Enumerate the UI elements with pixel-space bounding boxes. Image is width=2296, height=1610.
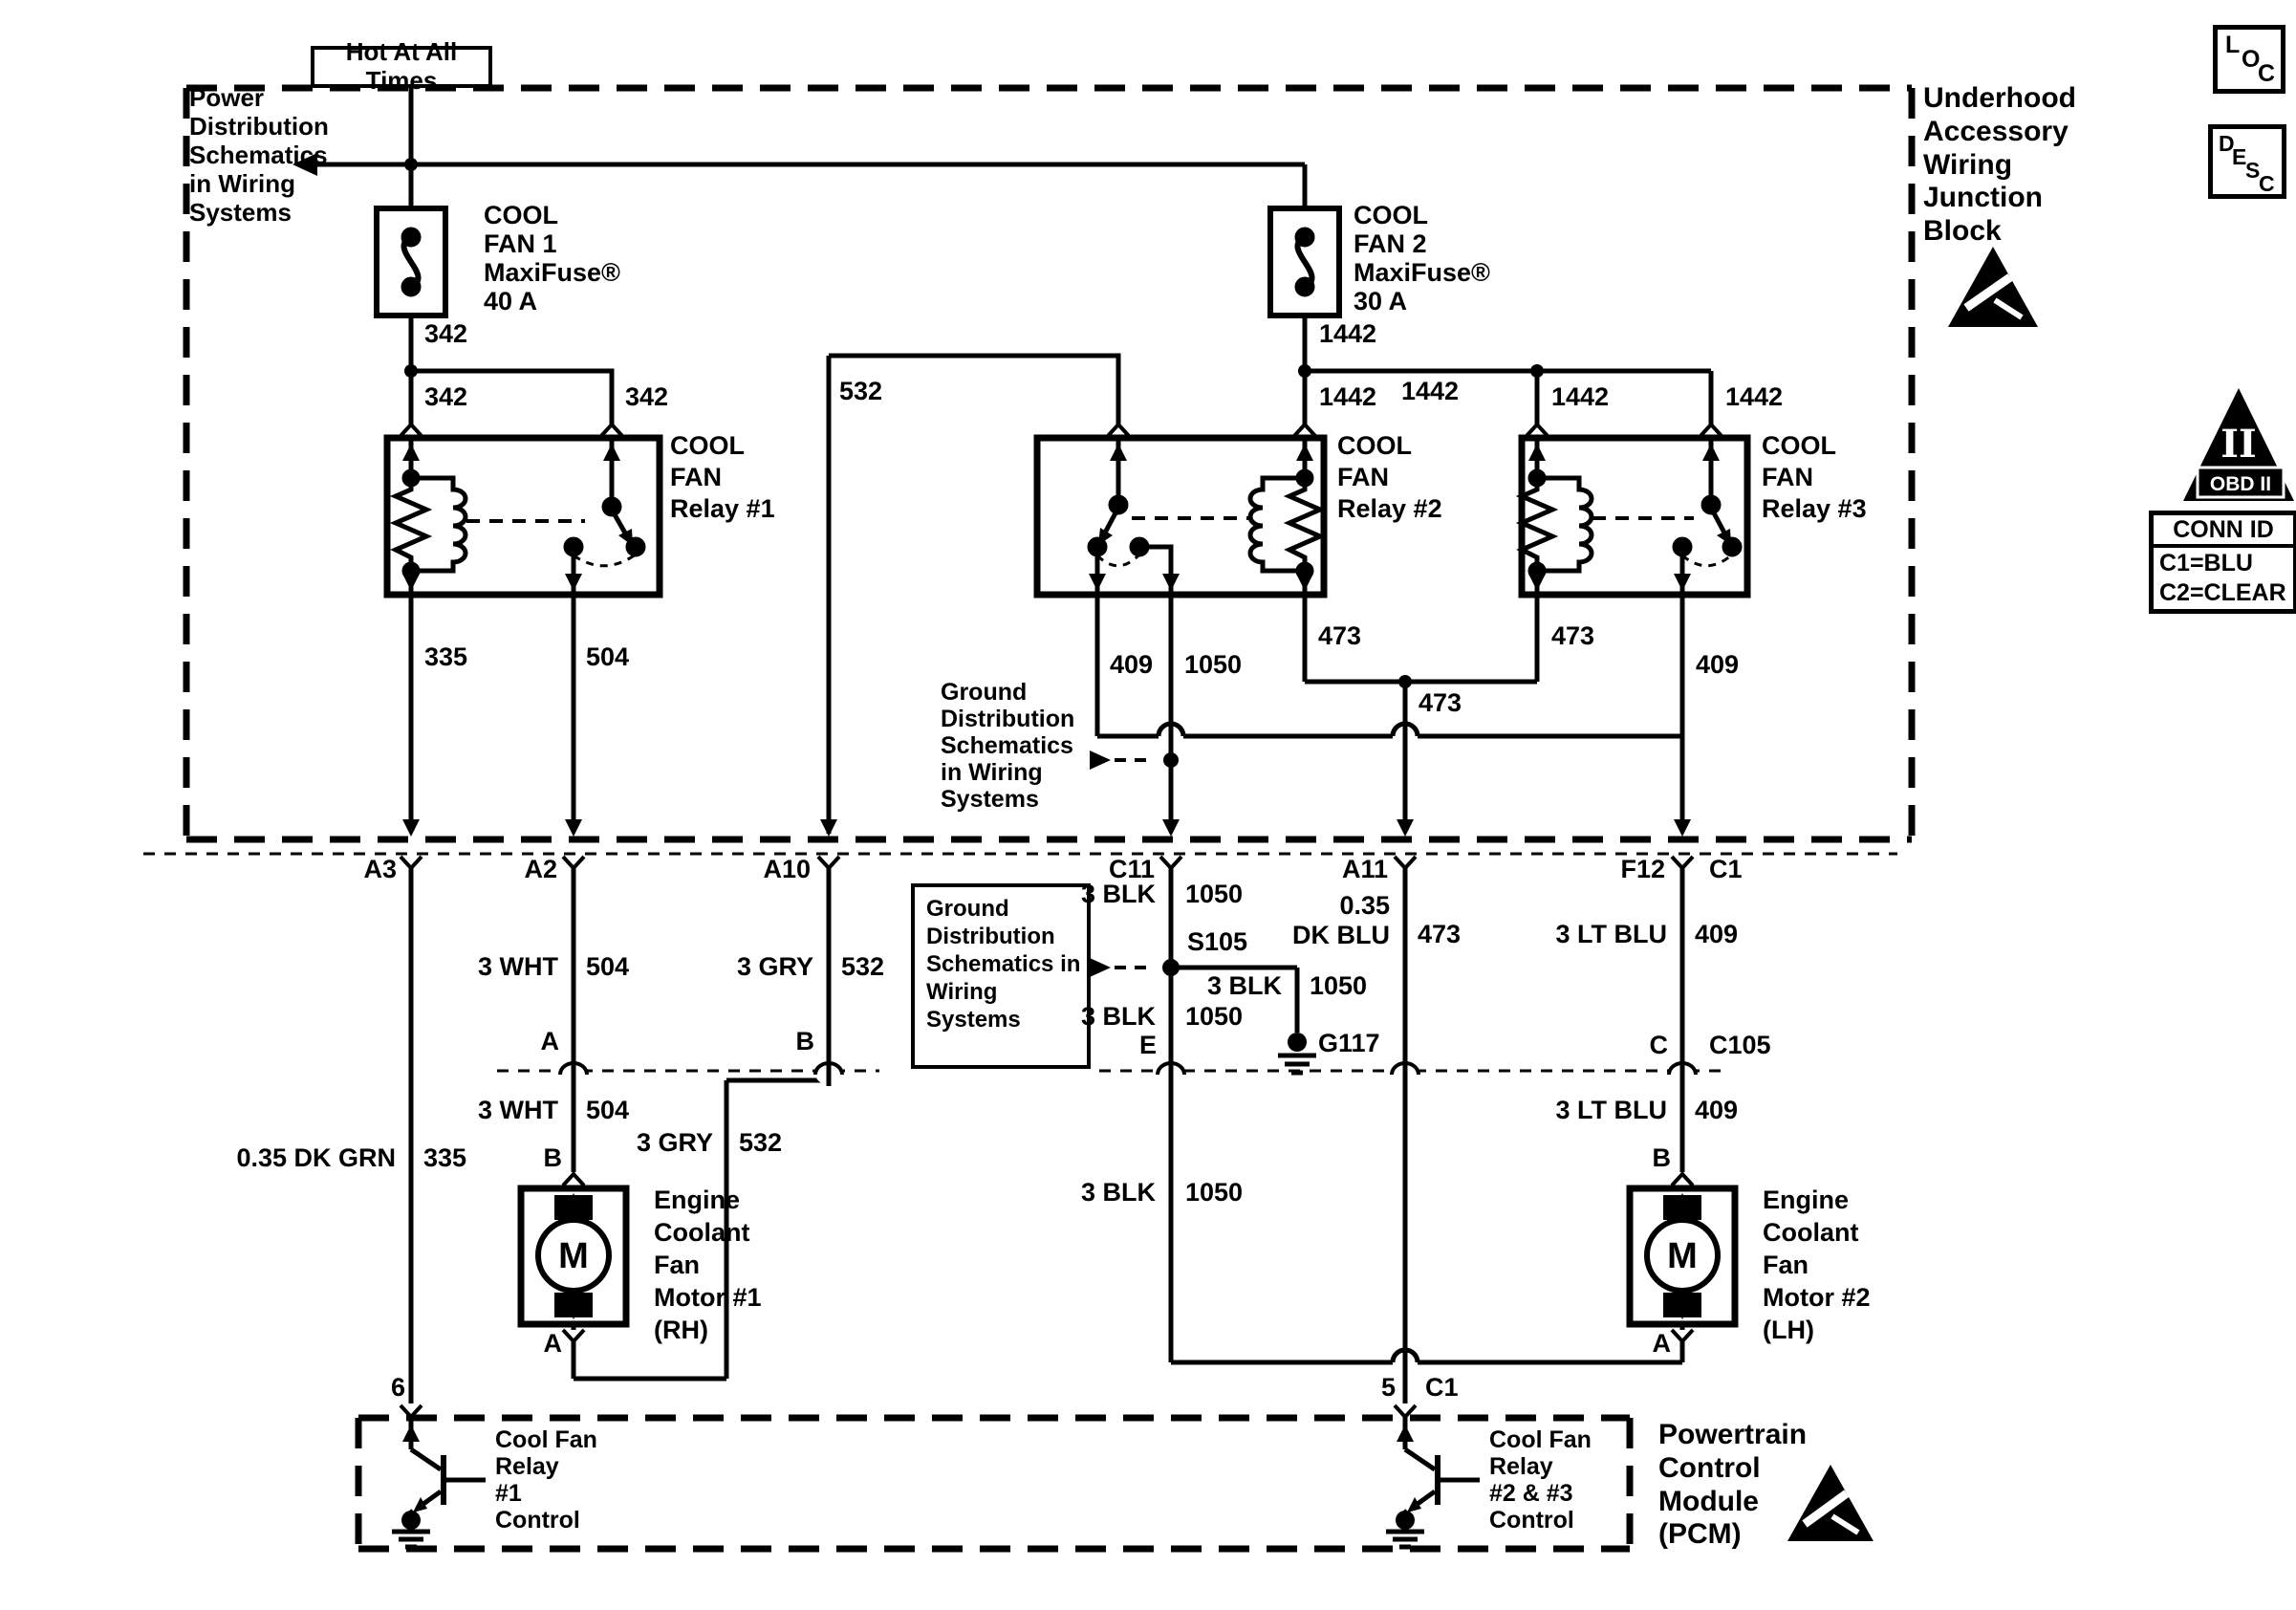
- label-gry-l: 3 GRY: [579, 1128, 713, 1158]
- relay1-symbol: [387, 438, 660, 595]
- desc-letter-c: C: [2259, 171, 2275, 197]
- wire-335: 335: [424, 642, 467, 672]
- num-532-u: 532: [841, 952, 884, 982]
- label-dkgrn: 0.35 DK GRN: [164, 1143, 396, 1173]
- motor1-label: Engine Coolant Fan Motor #1 (RH): [654, 1184, 762, 1346]
- conn-id-row2: C2=CLEAR: [2154, 579, 2293, 607]
- c105-pin-c: C: [1611, 1031, 1668, 1060]
- desc-badge: D E S C: [2208, 124, 2286, 199]
- num-532-l: 532: [739, 1128, 782, 1158]
- num-504-l: 504: [586, 1096, 629, 1125]
- conn-id-table: CONN ID C1=BLU C2=CLEAR: [2149, 511, 2296, 614]
- conn-id-row1: C1=BLU: [2154, 548, 2293, 579]
- num-409-l: 409: [1695, 1096, 1738, 1125]
- fuse-fan1-label: COOL FAN 1 MaxiFuse® 40 A: [484, 201, 620, 315]
- wire-504: 504: [586, 642, 629, 672]
- num-504-u: 504: [586, 952, 629, 982]
- motor1-m-symbol: M: [545, 1235, 602, 1277]
- wire-1442-fuse: 1442: [1319, 319, 1376, 349]
- wire-1442-mid: 1442: [1401, 377, 1459, 406]
- num-1050-l: 1050: [1185, 1178, 1243, 1207]
- pcm-driver1-label: Cool Fan Relay #1 Control: [495, 1426, 597, 1534]
- num-1050-m: 1050: [1185, 1002, 1243, 1032]
- wire-1442-r3coil: 1442: [1551, 382, 1609, 412]
- c105-pin-a: A: [502, 1027, 559, 1056]
- fuse-fan2-label: COOL FAN 2 MaxiFuse® 30 A: [1354, 201, 1490, 315]
- wire-473-mid: 473: [1419, 688, 1462, 718]
- pcm-title: Powertrain Control Module (PCM): [1658, 1419, 1807, 1552]
- conn-c105: C105: [1709, 1031, 1771, 1060]
- label-wht-l: 3 WHT: [424, 1096, 558, 1125]
- wire-473-right: 473: [1551, 621, 1594, 651]
- c105-pin-b: B: [757, 1027, 814, 1056]
- fuse-fan2-symbol: [1270, 208, 1339, 315]
- relay3-symbol: [1522, 438, 1747, 595]
- conn-id-title: CONN ID: [2154, 515, 2293, 548]
- label-gry-u: 3 GRY: [680, 952, 813, 982]
- ground-dist-arrow-1: [1090, 751, 1179, 770]
- ground-dist-note-2-box: Ground Distribution Schematics in Wiring…: [911, 883, 1091, 1069]
- pcm-pin6: 6: [367, 1373, 405, 1403]
- motor1-pin-a: A: [505, 1329, 562, 1359]
- ground-dist-arrow-2: [1090, 958, 1152, 977]
- splice-s105: S105: [1187, 927, 1247, 957]
- esd-warning-icon: [1948, 247, 2038, 327]
- fuse-fan1-symbol: [377, 208, 445, 315]
- label-blk-u: 3 BLK: [1022, 880, 1156, 909]
- pcm-driver2-transistor: [1386, 1417, 1480, 1547]
- power-dist-note: Power Distribution Schematics in Wiring …: [189, 84, 329, 227]
- wire-1050-mid: 1050: [1184, 650, 1242, 680]
- wire-342-left: 342: [424, 382, 467, 412]
- wire-1442-relay2: 1442: [1319, 382, 1376, 412]
- conn-a11: A11: [1316, 855, 1388, 884]
- wire-532-top: 532: [839, 377, 882, 406]
- wire-409-right: 409: [1696, 650, 1739, 680]
- hot-at-all-times-box: Hot At All Times: [311, 46, 492, 88]
- conn-f12: F12: [1589, 855, 1665, 884]
- wiring-diagram-page: II OBD II Hot At All Times Power Distrib…: [0, 0, 2296, 1610]
- relay1-label: COOL FAN Relay #1: [670, 430, 775, 525]
- ground-g117: G117: [1318, 1029, 1380, 1058]
- hot-at-all-times-label: Hot At All Times: [314, 38, 488, 96]
- label-wht-u: 3 WHT: [424, 952, 558, 982]
- conn-a3: A3: [330, 855, 397, 884]
- c105-pin-e: E: [1099, 1031, 1157, 1060]
- loc-badge: L O C: [2213, 25, 2285, 94]
- pcm-pin5: 5: [1357, 1373, 1396, 1403]
- wire-342-right: 342: [625, 382, 668, 412]
- junction-block-title: Underhood Accessory Wiring Junction Bloc…: [1923, 82, 2076, 249]
- motor2-m-symbol: M: [1654, 1235, 1711, 1277]
- motor1-pin-b: B: [505, 1143, 562, 1173]
- obd2-label-text: OBD II: [2210, 473, 2271, 495]
- pcm-pin5-conn: C1: [1425, 1373, 1459, 1403]
- relay2-label: COOL FAN Relay #2: [1337, 430, 1442, 525]
- num-1050-branch: 1050: [1310, 971, 1367, 1001]
- g117-ground-symbol: [1278, 1033, 1316, 1073]
- conn-a10: A10: [734, 855, 811, 884]
- label-blk-m: 3 BLK: [1022, 1002, 1156, 1032]
- num-473-a11: 473: [1418, 920, 1461, 949]
- obd2-pillar-text: II: [2220, 422, 2256, 467]
- junction-473: [1398, 675, 1412, 688]
- num-409-u: 409: [1695, 920, 1738, 949]
- ground-dist-note-1: Ground Distribution Schematics in Wiring…: [941, 679, 1074, 813]
- motor2-pin-b: B: [1614, 1143, 1671, 1173]
- conn-a2: A2: [490, 855, 557, 884]
- wire-409-left: 409: [1110, 650, 1153, 680]
- wire-473-left: 473: [1318, 621, 1361, 651]
- wire-1442-r3sw: 1442: [1725, 382, 1783, 412]
- label-blk-branch: 3 BLK: [1148, 971, 1282, 1001]
- loc-letter-c: C: [2258, 60, 2275, 88]
- obd2-icon: II OBD II: [2183, 388, 2294, 501]
- motor2-label: Engine Coolant Fan Motor #2 (LH): [1763, 1184, 1871, 1346]
- conn-c1: C1: [1709, 855, 1743, 884]
- num-1050-u: 1050: [1185, 880, 1243, 909]
- pcm-driver1-transistor: [392, 1417, 486, 1547]
- motor2-pin-a: A: [1614, 1329, 1671, 1359]
- label-dkblu: 0.35 DK BLU: [1256, 891, 1390, 950]
- label-ltblu-l: 3 LT BLU: [1514, 1096, 1667, 1125]
- pcm-driver2-label: Cool Fan Relay #2 & #3 Control: [1489, 1426, 1592, 1534]
- relay3-label: COOL FAN Relay #3: [1762, 430, 1867, 525]
- num-335-l: 335: [423, 1143, 466, 1173]
- label-blk-l: 3 BLK: [1022, 1178, 1156, 1207]
- label-ltblu-u: 3 LT BLU: [1514, 920, 1667, 949]
- loc-letter-l: L: [2225, 32, 2240, 59]
- wire-342-fuse: 342: [424, 319, 467, 349]
- relay2-symbol: [1037, 438, 1324, 595]
